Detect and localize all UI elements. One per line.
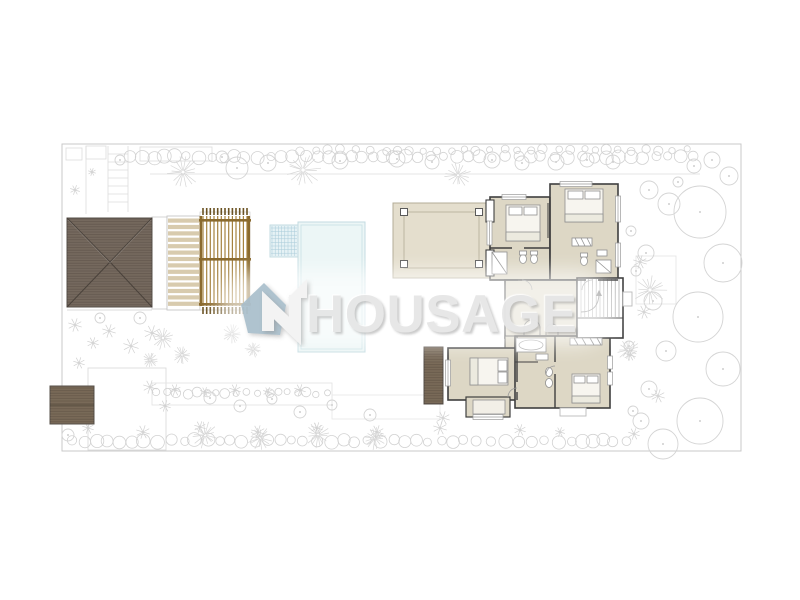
spa-steps [270,225,298,257]
roof-strip [424,347,443,404]
side-deck [152,217,167,309]
site-plan-page: HOUSAGE [0,0,800,600]
canopy-terrace [393,203,490,278]
garage-hip-roof [67,218,152,307]
shed-roof [50,386,94,424]
board-deck [167,216,200,310]
entry-steps [560,408,586,416]
stair-landing [623,292,632,306]
trees-right [615,152,742,459]
watermark-text: HOUSAGE [306,287,606,347]
